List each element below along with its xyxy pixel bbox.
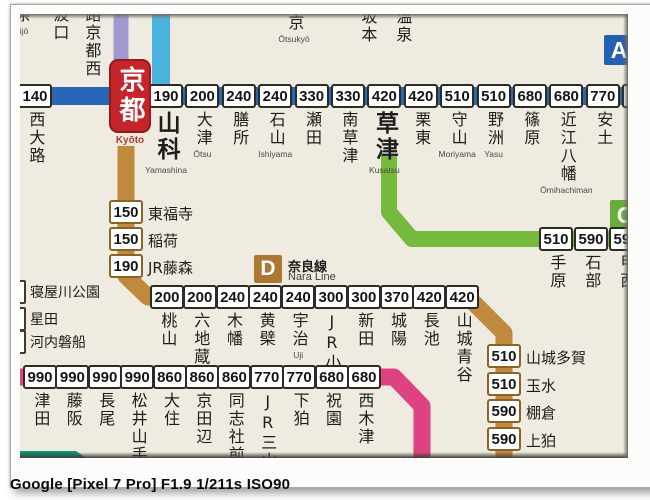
fare-badge (20, 330, 26, 354)
station-name: 宇治Uji (281, 312, 315, 360)
fare-badge: 190 (109, 254, 143, 278)
fare-badge: 680 (347, 365, 381, 389)
station-name: 星田 (30, 309, 58, 329)
fare-badge: 200 (150, 285, 184, 309)
kyoto-station-box: 京都 (109, 59, 151, 133)
fare-badge: 300 (347, 285, 381, 309)
station-name: 草津Kusatsu (360, 111, 408, 175)
fare-badge: 680 (315, 365, 349, 389)
fare-badge: 420 (367, 84, 401, 108)
fare-badge: 150 (109, 200, 143, 224)
station-name: JR藤森 (148, 257, 193, 278)
station-name: 守山Moriyama (439, 111, 476, 159)
station-name: 下狛 (282, 392, 316, 428)
station-name: 城陽 (380, 312, 414, 348)
fare-badge: 510 (487, 372, 521, 396)
line-badge-d: D (254, 255, 282, 283)
station-name: 玉水 (526, 375, 556, 396)
fare-badge: 510 (487, 344, 521, 368)
station-name: 稲荷 (148, 230, 178, 251)
station-name: 西大路 (20, 111, 60, 165)
fare-badge: 240 (216, 285, 250, 309)
station-name: 寝屋川公園 (30, 282, 100, 302)
station-name: 東福寺 (148, 203, 193, 224)
fare-badge: 680 (513, 84, 547, 108)
fare-badge: 990 (120, 365, 154, 389)
fare-badge: 590 (487, 399, 521, 423)
fare-badge: 240 (258, 84, 292, 108)
fare-badge: 150 (109, 227, 143, 251)
fare-badge: 190 (149, 84, 183, 108)
station-name: 野洲Yasu (477, 111, 511, 159)
fare-badge: 510 (440, 84, 474, 108)
caption: Google [Pixel 7 Pro] F1.9 1/211s ISO90 (10, 476, 290, 493)
fare-badge: 330 (331, 84, 365, 108)
station-name: 石山Ishiyama (258, 111, 292, 159)
station-name: 河内磐船 (30, 332, 86, 352)
photo-right-edge (623, 14, 628, 458)
fare-badge: 240 (248, 285, 282, 309)
fare-badge: 590 (487, 427, 521, 451)
fare-badge: 300 (314, 285, 348, 309)
fare-badge: 420 (445, 285, 479, 309)
fare-badge: 990 (55, 365, 89, 389)
station-name: 藤阪 (56, 392, 90, 428)
fare-badge: 330 (295, 84, 329, 108)
fare-badge: 200 (185, 84, 219, 108)
station-name: 木幡 (216, 312, 250, 348)
photo-frame: 京都 Kyōto A C D 奈良線 Nara Line 条 Nijō 波口 路… (10, 4, 650, 488)
station-name: 津田 (23, 392, 57, 428)
station-name: 石部 (574, 254, 608, 290)
fare-badge: 860 (217, 365, 251, 389)
fare-badge: 590 (574, 227, 608, 251)
station-name: 西木津 (339, 392, 389, 446)
nara-line-label-en: Nara Line (288, 271, 336, 283)
fare-badge: 510 (539, 227, 573, 251)
station-name: 大津Ōtsu (186, 111, 220, 159)
fare-badge: 420 (404, 84, 438, 108)
fare-badge: 370 (380, 285, 414, 309)
fare-badge: 510 (477, 84, 511, 108)
kyoto-station-name: 京都 (117, 66, 143, 126)
station-name: 膳所 (222, 111, 256, 147)
fare-badge: 140 (20, 84, 52, 108)
fare-badge: 200 (183, 285, 217, 309)
station-name: 上狛 (526, 430, 556, 451)
fare-badge: 420 (412, 285, 446, 309)
fare-badge (20, 280, 26, 304)
photo-top-edge (20, 14, 628, 19)
fare-badge: 860 (153, 365, 187, 389)
station-name: 栗東 (404, 111, 438, 147)
fare-badge: 990 (23, 365, 57, 389)
fare-badge: 240 (222, 84, 256, 108)
station-name: 山城青谷 (429, 312, 496, 384)
station-name: 新田 (347, 312, 381, 348)
fare-badge (20, 307, 26, 331)
fare-badge: 770 (250, 365, 284, 389)
station-name: 黄檗 (249, 312, 283, 348)
fare-badge: 770 (586, 84, 620, 108)
fare-badge: 860 (185, 365, 219, 389)
fare-badge: 990 (88, 365, 122, 389)
fare-badge: 680 (549, 84, 583, 108)
station-name: 手原 (539, 254, 573, 290)
station-name: 棚倉 (526, 402, 556, 423)
station-name: 山城多賀 (526, 347, 586, 368)
fare-badge: 770 (282, 365, 316, 389)
fare-badge: 240 (281, 285, 315, 309)
railway-fare-map: 京都 Kyōto A C D 奈良線 Nara Line 条 Nijō 波口 路… (20, 14, 628, 458)
kyoto-romaji: Kyōto (116, 135, 144, 146)
photo-bottom-edge (20, 452, 628, 458)
